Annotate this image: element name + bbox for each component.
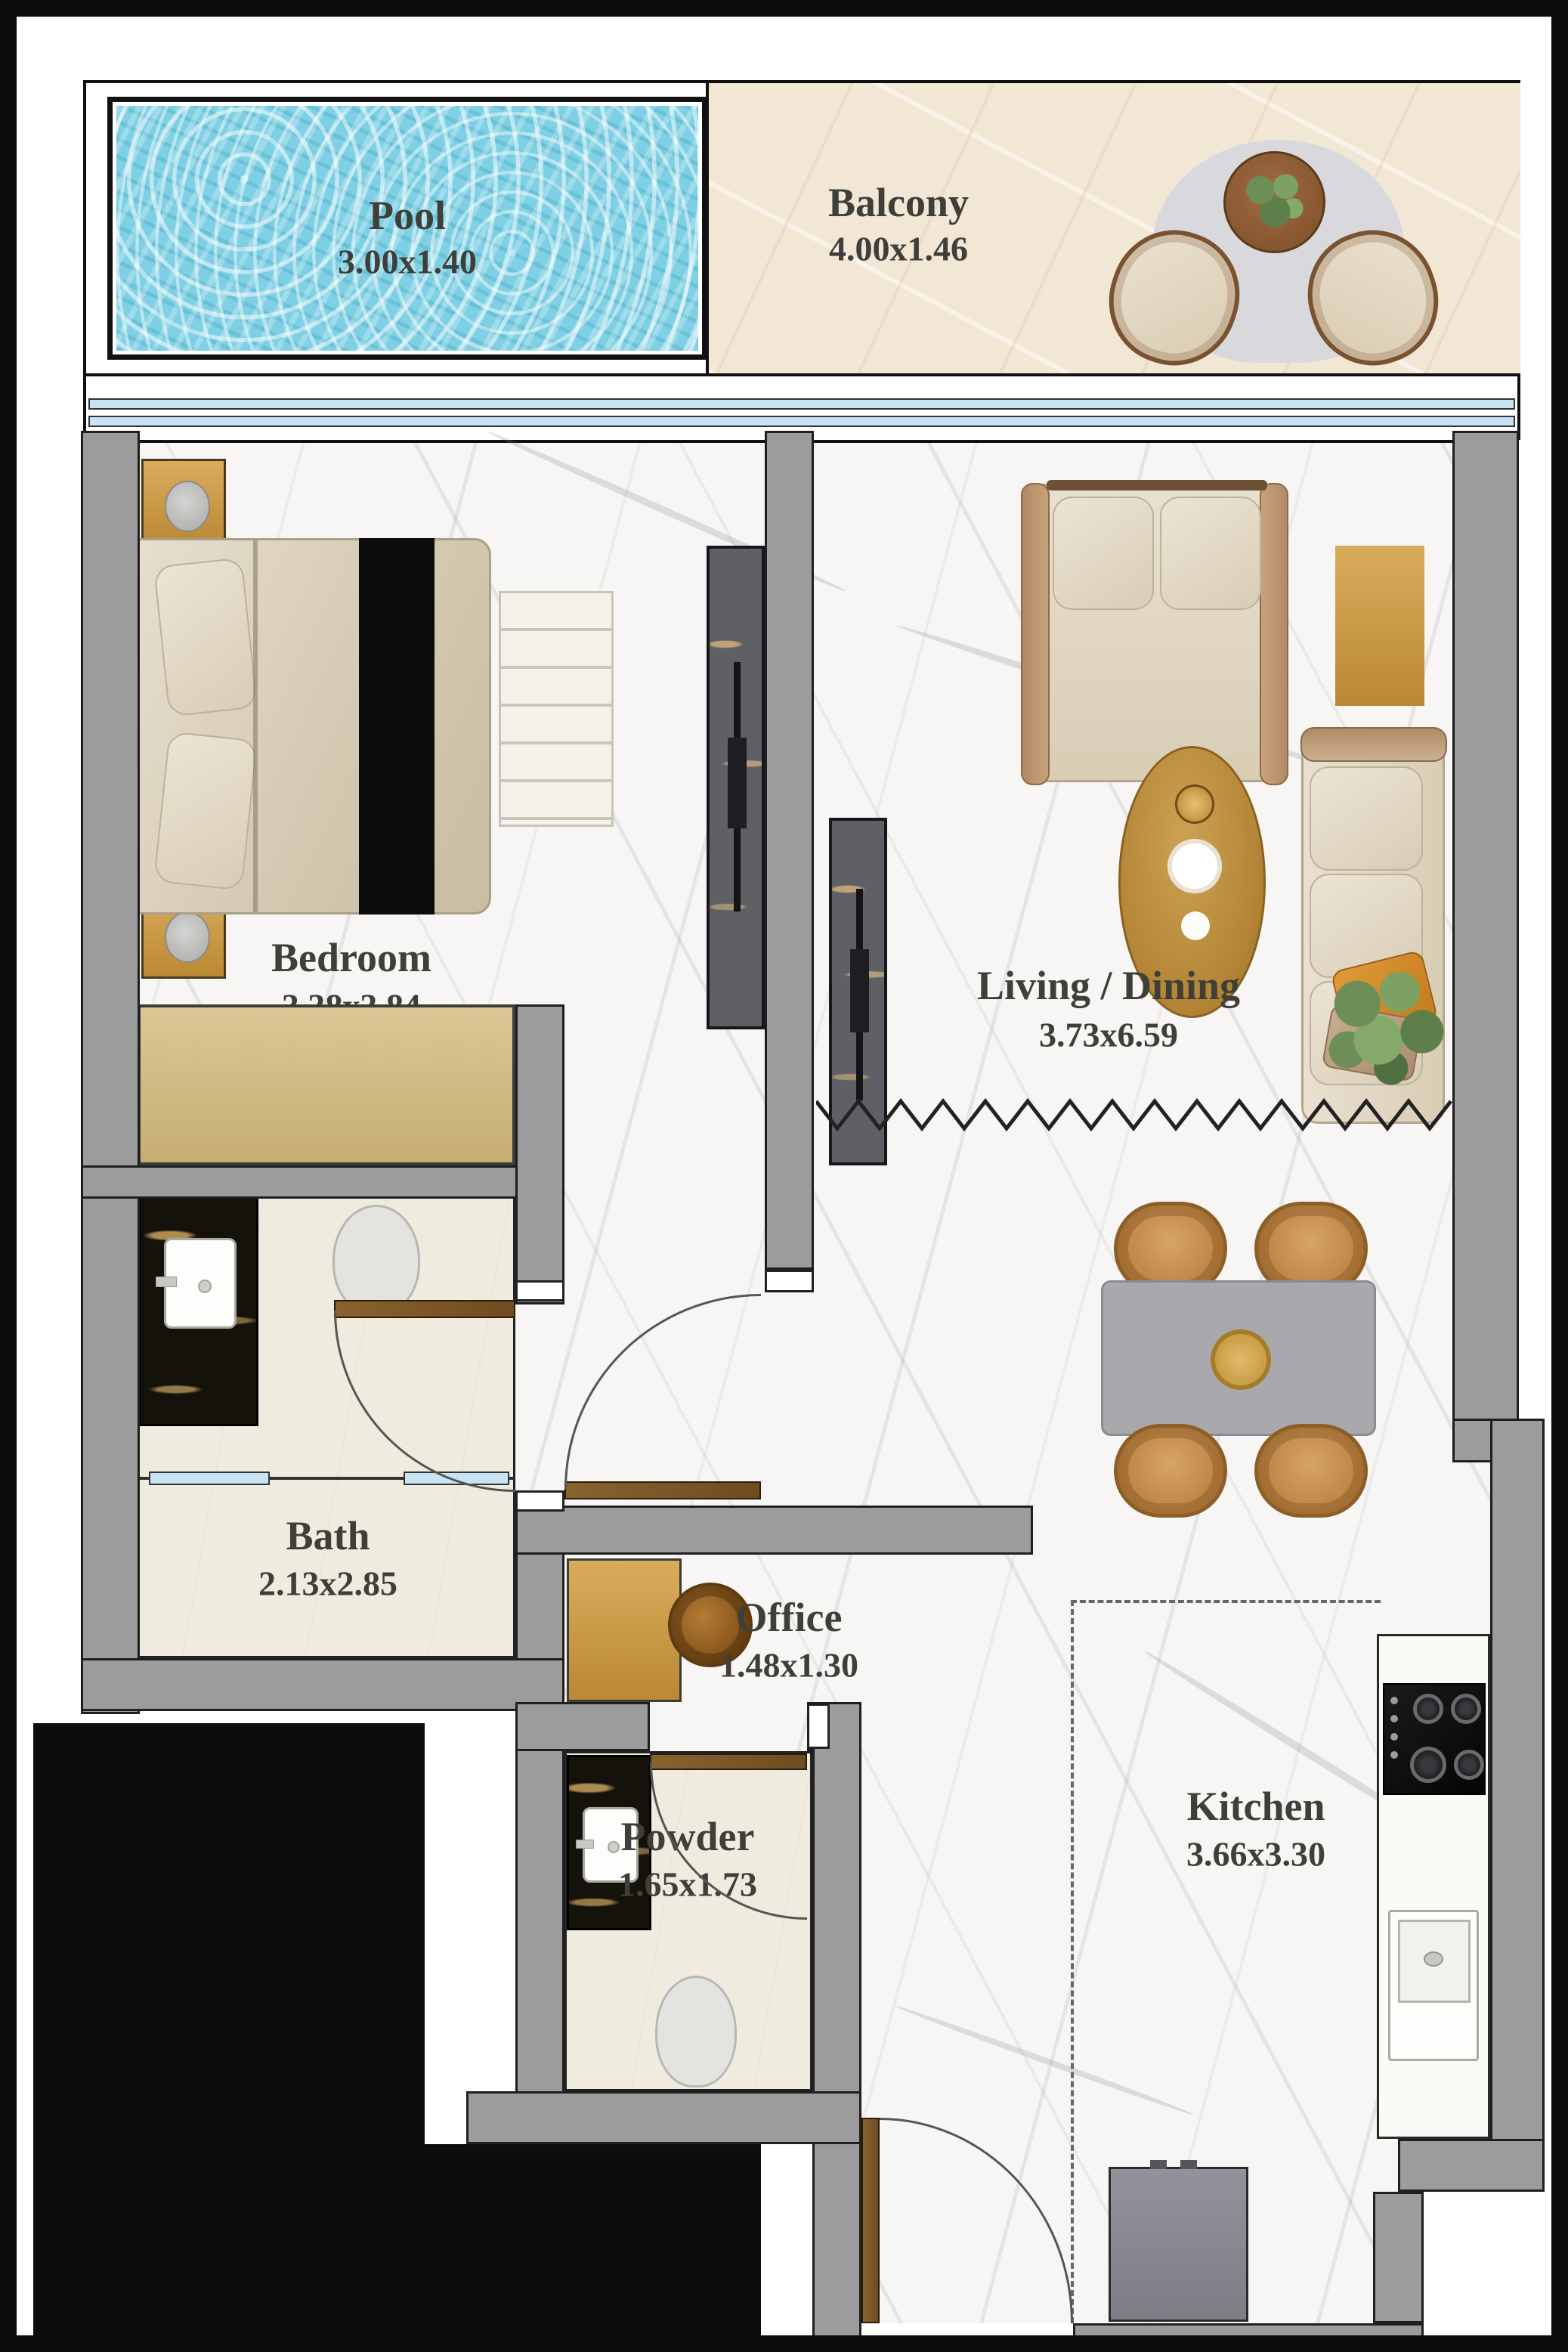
- wall-spine-upper: [515, 1004, 564, 1304]
- wall-partition-bedroom: [765, 431, 814, 1270]
- entry-door: [861, 2118, 880, 2323]
- bedroom-label: Bedroom: [271, 934, 431, 981]
- exterior-margin-right-upper: [1517, 440, 1568, 1422]
- bath-dims: 2.13x2.85: [258, 1564, 397, 1605]
- office-desk: [567, 1558, 682, 1702]
- bath-vanity: [139, 1192, 258, 1426]
- stove-knob-icon: [1390, 1715, 1398, 1722]
- sofa-back-rail: [1300, 727, 1447, 762]
- stove-knob-icon: [1390, 1733, 1398, 1741]
- living-label: Living / Dining: [977, 962, 1240, 1009]
- wall-spine-lower: [515, 1490, 564, 2144]
- nightstand-top: [141, 459, 226, 548]
- dining-chair-bottom-right: [1254, 1424, 1368, 1518]
- wall-powder-right: [812, 1702, 861, 2352]
- exterior-margin-right-mid: [1545, 1419, 1568, 2192]
- wall-kitchen-connector: [1373, 2192, 1424, 2323]
- pool-dims: 3.00x1.40: [338, 243, 477, 283]
- bath-toilet: [332, 1205, 420, 1315]
- wall-right-upper: [1452, 431, 1519, 1428]
- faucet-icon: [576, 1840, 594, 1849]
- wall-corridor-south: [515, 1506, 1033, 1555]
- kitchen-fridge: [1109, 2167, 1248, 2322]
- office-dims: 1.48x1.30: [719, 1646, 858, 1686]
- balcony-label: Balcony: [828, 179, 969, 226]
- lamp-icon: [165, 481, 210, 532]
- wall-bath-top-band: [81, 1165, 564, 1199]
- kitchen-dashed-boundary-h: [1071, 1600, 1381, 1603]
- tv-bracket-icon: [728, 738, 747, 828]
- loveseat: [1022, 484, 1288, 782]
- powder-toilet: [655, 1976, 737, 2087]
- loveseat-top-rail: [1047, 480, 1267, 491]
- wall-bath-bottom: [81, 1658, 564, 1711]
- door-frame-notch: [765, 1270, 814, 1292]
- stove-knob-icon: [1390, 1697, 1398, 1704]
- kitchen-dashed-boundary-v: [1071, 1600, 1074, 2323]
- exterior-margin-entry: [761, 2144, 812, 2323]
- floor-plan: Pool 3.00x1.40 Balcony 4.00x1.46: [0, 0, 1568, 2352]
- faucet-icon: [1424, 1951, 1443, 1967]
- table-decor-ring: [1167, 839, 1222, 893]
- fridge-handle-icon: [1180, 2160, 1197, 2169]
- pool-label: Pool: [369, 192, 446, 239]
- balcony-sliding-door-glass-1: [88, 398, 1515, 410]
- balcony-sliding-door-glass-2: [88, 416, 1515, 427]
- office-label: Office: [736, 1594, 843, 1641]
- door-frame-notch: [515, 1490, 564, 1512]
- lamp-icon: [165, 911, 210, 963]
- living-side-rug: [1335, 546, 1424, 706]
- dining-centerpiece: [1211, 1329, 1271, 1390]
- drain-icon: [608, 1841, 620, 1853]
- table-decor-gold-dot: [1175, 785, 1214, 824]
- wall-powder-bottom: [466, 2091, 861, 2144]
- living-plant: [1322, 965, 1447, 1086]
- wall-kitchen-step: [1398, 2139, 1545, 2192]
- wall-right-lower: [1490, 1419, 1545, 2192]
- door-frame-notch: [807, 1704, 830, 1749]
- bed-runner: [359, 538, 435, 914]
- fridge-handle-icon: [1150, 2160, 1167, 2169]
- blanket-fold: [253, 540, 258, 912]
- stove-knob-icon: [1390, 1751, 1398, 1759]
- kitchen-dims: 3.66x3.30: [1186, 1835, 1325, 1875]
- pool: Pool 3.00x1.40: [107, 97, 707, 360]
- burner-icon: [1410, 1747, 1446, 1783]
- door-frame-notch: [515, 1280, 564, 1301]
- sofa-cushion-1: [1310, 766, 1423, 871]
- bedroom-tv-panel: [707, 546, 765, 1029]
- burner-icon: [1454, 1750, 1484, 1780]
- dining-chair-top-left: [1114, 1202, 1227, 1295]
- loveseat-arm-right: [1260, 483, 1288, 785]
- wall-bottom: [1073, 2323, 1424, 2352]
- balcony-plant: [1239, 165, 1311, 237]
- dining-chair-bottom-left: [1114, 1424, 1227, 1518]
- kitchen-stove: [1383, 1683, 1486, 1795]
- bed-bench: [499, 591, 614, 827]
- pillow-bottom: [153, 731, 258, 890]
- balcony-area: Pool 3.00x1.40 Balcony 4.00x1.46: [83, 80, 1520, 376]
- dining-table: [1103, 1283, 1374, 1434]
- wall-left: [81, 431, 140, 1714]
- bath-shower-glass-left: [149, 1472, 270, 1485]
- exterior-margin-bottom-right: [1424, 2192, 1568, 2352]
- exterior-black-block-lower: [33, 2144, 761, 2352]
- loveseat-back-cushion-left: [1053, 497, 1154, 610]
- table-decor-dot: [1181, 911, 1210, 940]
- bed: [130, 538, 491, 914]
- tv-bracket-icon: [850, 949, 869, 1032]
- burner-icon: [1413, 1694, 1443, 1724]
- drain-icon: [198, 1280, 212, 1293]
- kitchen-sink: [1388, 1910, 1479, 2061]
- zigzag-divider: [816, 1094, 1455, 1136]
- bath-sink: [164, 1238, 237, 1329]
- kitchen-label: Kitchen: [1187, 1783, 1325, 1830]
- burner-icon: [1451, 1694, 1481, 1724]
- loveseat-back-cushion-right: [1160, 497, 1261, 610]
- living-dims: 3.73x6.59: [1039, 1016, 1178, 1056]
- bath-label: Bath: [286, 1512, 370, 1559]
- faucet-icon: [156, 1277, 177, 1287]
- dining-chair-top-right: [1254, 1202, 1368, 1295]
- wardrobe: [138, 1004, 515, 1165]
- balcony-dims: 4.00x1.46: [829, 230, 968, 270]
- loveseat-arm-left: [1021, 483, 1050, 785]
- wall-powder-top-left: [515, 1702, 650, 1751]
- pillow-top: [153, 557, 258, 716]
